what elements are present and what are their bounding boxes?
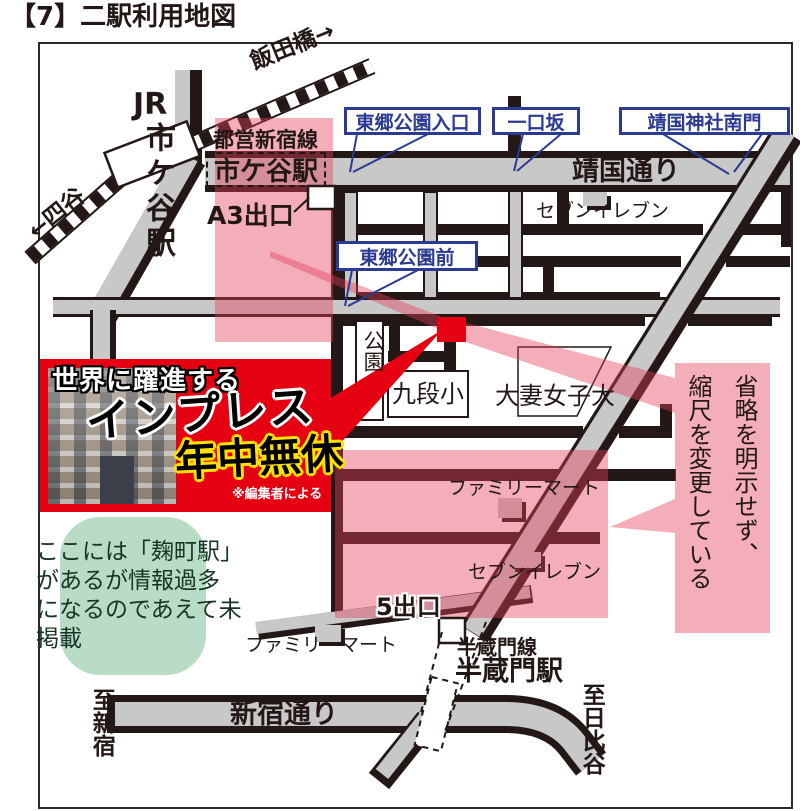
shinjuku-road	[107, 695, 591, 764]
label-seven-eleven-south: セブンイレブン	[468, 562, 601, 583]
building-entrance	[100, 456, 134, 504]
label-jr-ichigaya-station: 市ケ谷駅	[141, 122, 174, 302]
label-to-hibiya: 至日比谷	[578, 683, 603, 773]
destination-marker	[437, 317, 466, 342]
annotation-text: 省略を明示せず、 縮尺を変更している	[679, 374, 767, 626]
callout-togo-park-entrance: 東郷公園入口	[344, 107, 481, 135]
callout-hitokuchizaka: 一口坂	[492, 107, 580, 135]
note-bubble-text: ここには「麹町駅」 があるが情報過多 になるのであえて未 掲載	[36, 538, 243, 654]
label-a3-exit: A3出口	[207, 202, 294, 230]
label-toei-ichigaya-station: 市ケ谷駅	[214, 151, 318, 188]
ad-box: 世界に躍進する インプレス 年中無休 ※編集者による	[40, 359, 331, 512]
highlight-wedge	[610, 499, 675, 533]
label-exit5: 5出口	[376, 594, 441, 620]
map-figure: 【7】二駅利用地図	[0, 0, 800, 811]
label-park: 公園	[361, 330, 384, 414]
label-otsuma-university: 大妻女子大	[495, 383, 615, 409]
callout-yasukuni-south-gate: 靖国神社南門	[619, 107, 790, 135]
label-family-mart-south: ファミリーマート	[245, 635, 397, 656]
label-kudan-elementary: 九段小	[388, 371, 468, 417]
label-yasukuni-dori: 靖国通り	[572, 157, 680, 187]
label-toei-shinjuku-line: 都営新宿線	[213, 129, 318, 152]
label-jr: JR	[133, 88, 167, 121]
ad-note: ※編集者による	[232, 488, 322, 502]
a3-exit-box	[308, 186, 335, 209]
label-hanzomon-station: 半蔵門駅	[455, 657, 563, 687]
label-shinjuku-dori: 新宿通り	[230, 700, 338, 730]
label-family-mart-mid: ファミリーマート	[448, 478, 600, 499]
toei-ichigaya-station-box: 市ケ谷駅	[206, 152, 326, 187]
label-hanzomon-line: 半蔵門線	[457, 636, 537, 658]
label-to-shinjuku: 至新宿	[88, 688, 113, 768]
callout-togo-park-front: 東郷公園前	[336, 241, 478, 271]
ad-always-open: 年中無休	[174, 431, 344, 486]
label-seven-eleven-north: セブンイレブン	[536, 201, 669, 222]
